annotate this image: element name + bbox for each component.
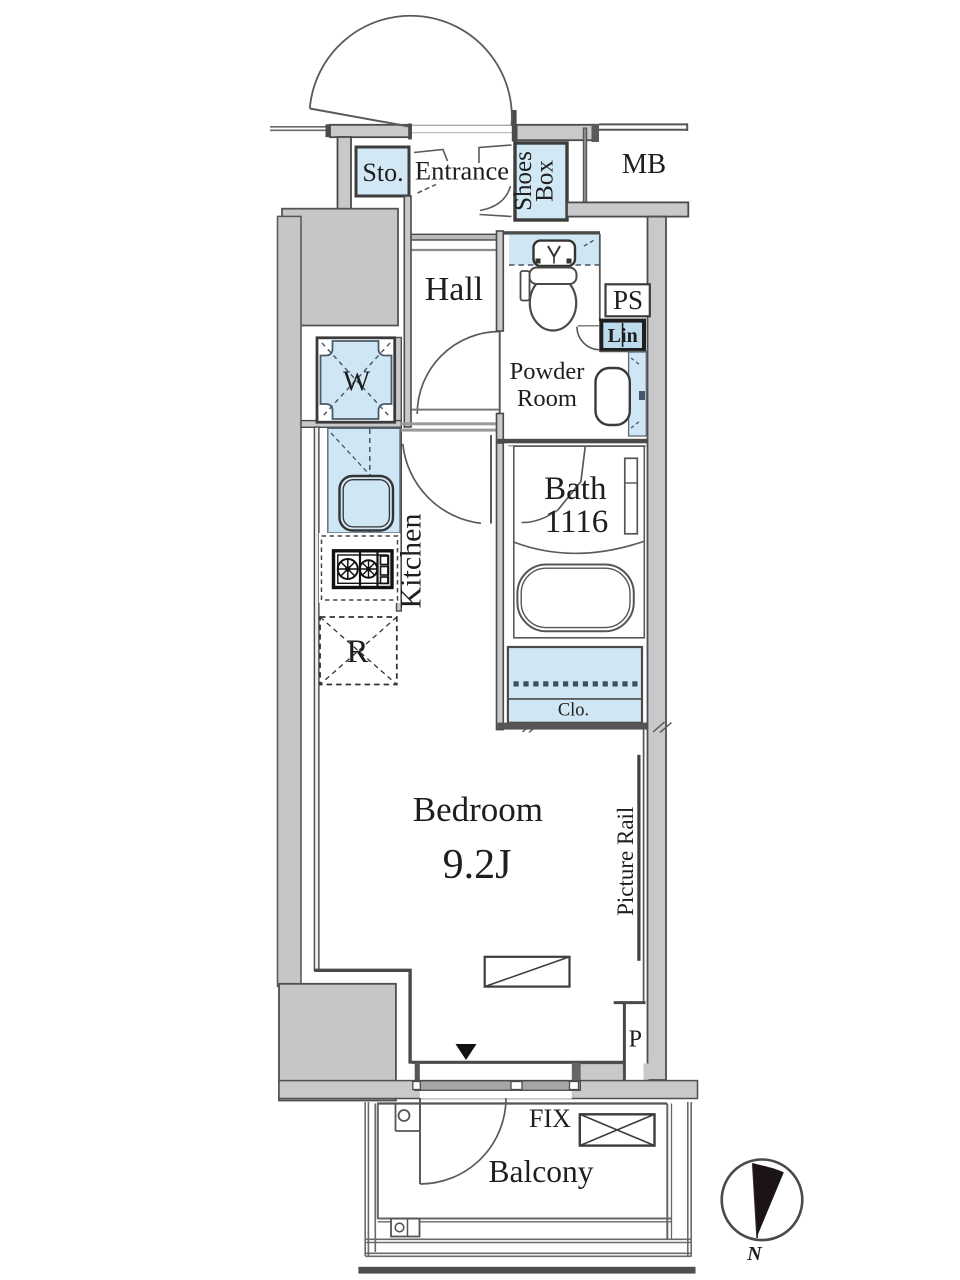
svg-text:Lin: Lin — [608, 325, 638, 347]
svg-text:R: R — [346, 634, 368, 670]
svg-text:1116: 1116 — [545, 504, 609, 540]
svg-text:Sto.: Sto. — [362, 158, 403, 187]
svg-text:PS: PS — [613, 285, 643, 315]
svg-text:P: P — [629, 1027, 642, 1053]
svg-text:Bath: Bath — [544, 471, 607, 507]
svg-text:Box: Box — [532, 160, 559, 202]
svg-text:Clo.: Clo. — [558, 701, 589, 721]
svg-text:N: N — [746, 1243, 763, 1265]
svg-text:Powder: Powder — [510, 358, 585, 385]
svg-text:Balcony: Balcony — [489, 1154, 594, 1189]
svg-text:MB: MB — [622, 149, 666, 180]
svg-text:Room: Room — [517, 385, 577, 412]
svg-text:Kitchen: Kitchen — [395, 514, 428, 609]
svg-text:Entrance: Entrance — [415, 156, 509, 186]
svg-text:FIX: FIX — [529, 1104, 571, 1133]
svg-text:9.2J: 9.2J — [443, 842, 512, 888]
svg-text:Bedroom: Bedroom — [413, 790, 543, 829]
svg-text:W: W — [343, 366, 371, 398]
svg-text:Hall: Hall — [425, 271, 484, 308]
svg-text:Picture Rail: Picture Rail — [613, 807, 638, 916]
